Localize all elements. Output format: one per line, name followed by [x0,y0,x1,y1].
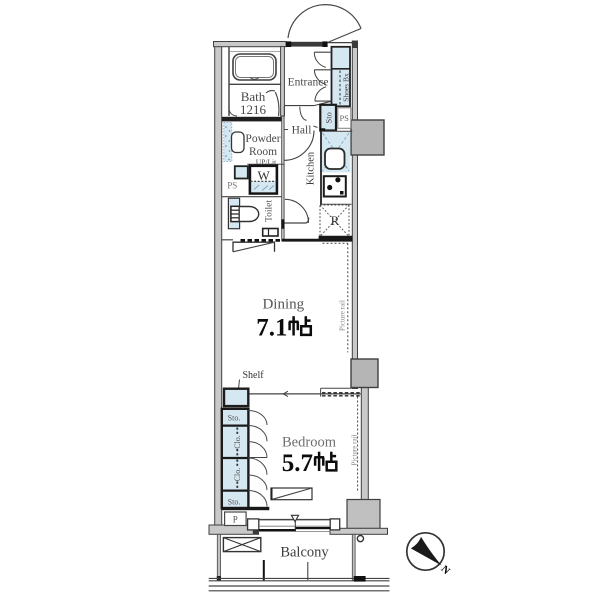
svg-text:Picture rail: Picture rail [350,434,358,465]
svg-text:Kitchen: Kitchen [306,151,317,185]
svg-text:PS: PS [339,113,349,123]
svg-text:Sto.: Sto. [228,414,241,423]
svg-text:Powder: Powder [245,133,280,145]
svg-text:Sto.: Sto. [228,498,241,507]
svg-text:Dining: Dining [262,297,304,313]
svg-text:P: P [233,515,238,525]
svg-text:Balcony: Balcony [280,545,329,561]
svg-text:Sto: Sto [323,112,333,123]
svg-text:Toilet: Toilet [265,200,275,222]
svg-text:Clo.: Clo. [233,435,242,449]
svg-text:R: R [331,213,340,228]
svg-text:Clo.: Clo. [233,468,242,482]
svg-text:Hall: Hall [292,125,312,137]
svg-text:1216: 1216 [240,102,267,117]
svg-text:Room: Room [249,146,277,158]
svg-text:Shoes Bx: Shoes Bx [342,73,351,102]
svg-text:Bedroom: Bedroom [282,435,337,451]
svg-text:W: W [257,168,270,183]
svg-text:Shelf: Shelf [242,370,264,381]
svg-text:Picture rail: Picture rail [339,300,347,331]
svg-text:5.7: 5.7 [282,450,313,477]
svg-text:PS: PS [227,181,237,191]
svg-text:7.1: 7.1 [256,315,287,342]
